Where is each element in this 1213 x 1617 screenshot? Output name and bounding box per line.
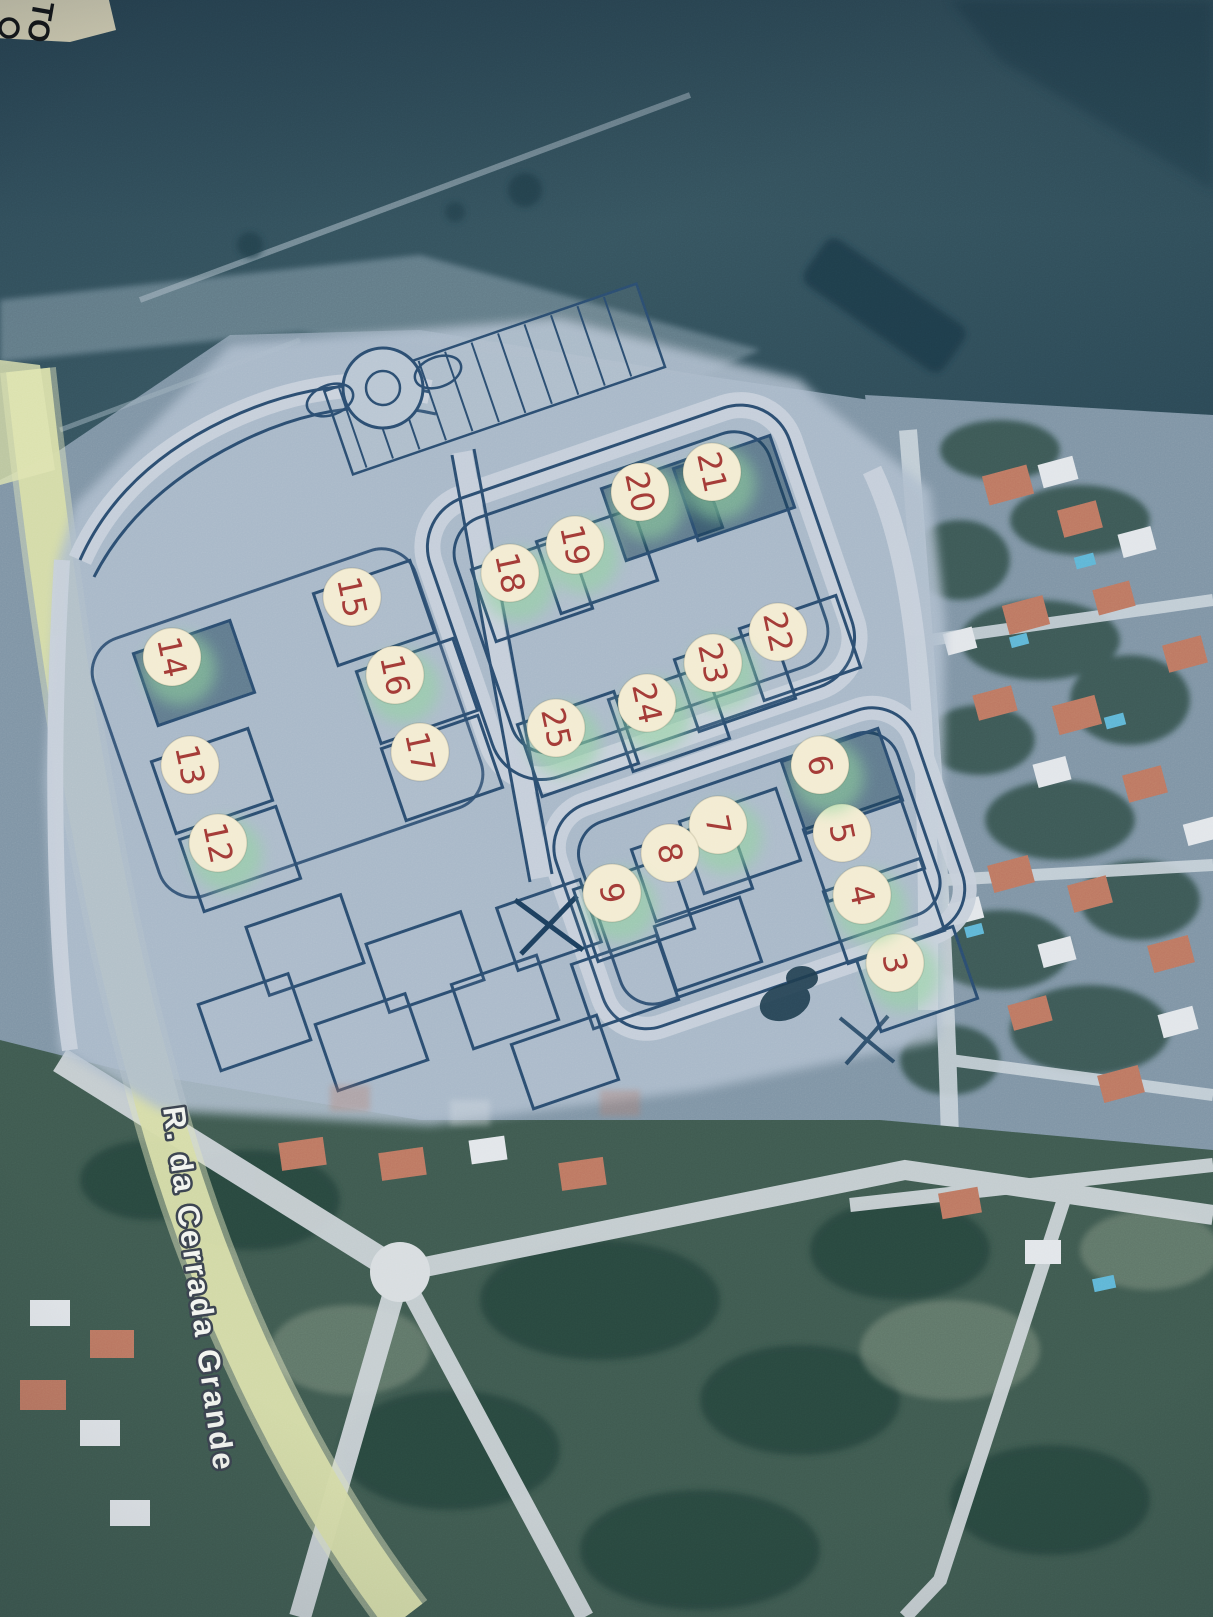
roundabout-south xyxy=(370,1242,430,1302)
aerial-photo: 34567891213141516171819202122232425 R. d… xyxy=(0,0,1213,1617)
corner-label-text: TO xyxy=(20,0,60,45)
